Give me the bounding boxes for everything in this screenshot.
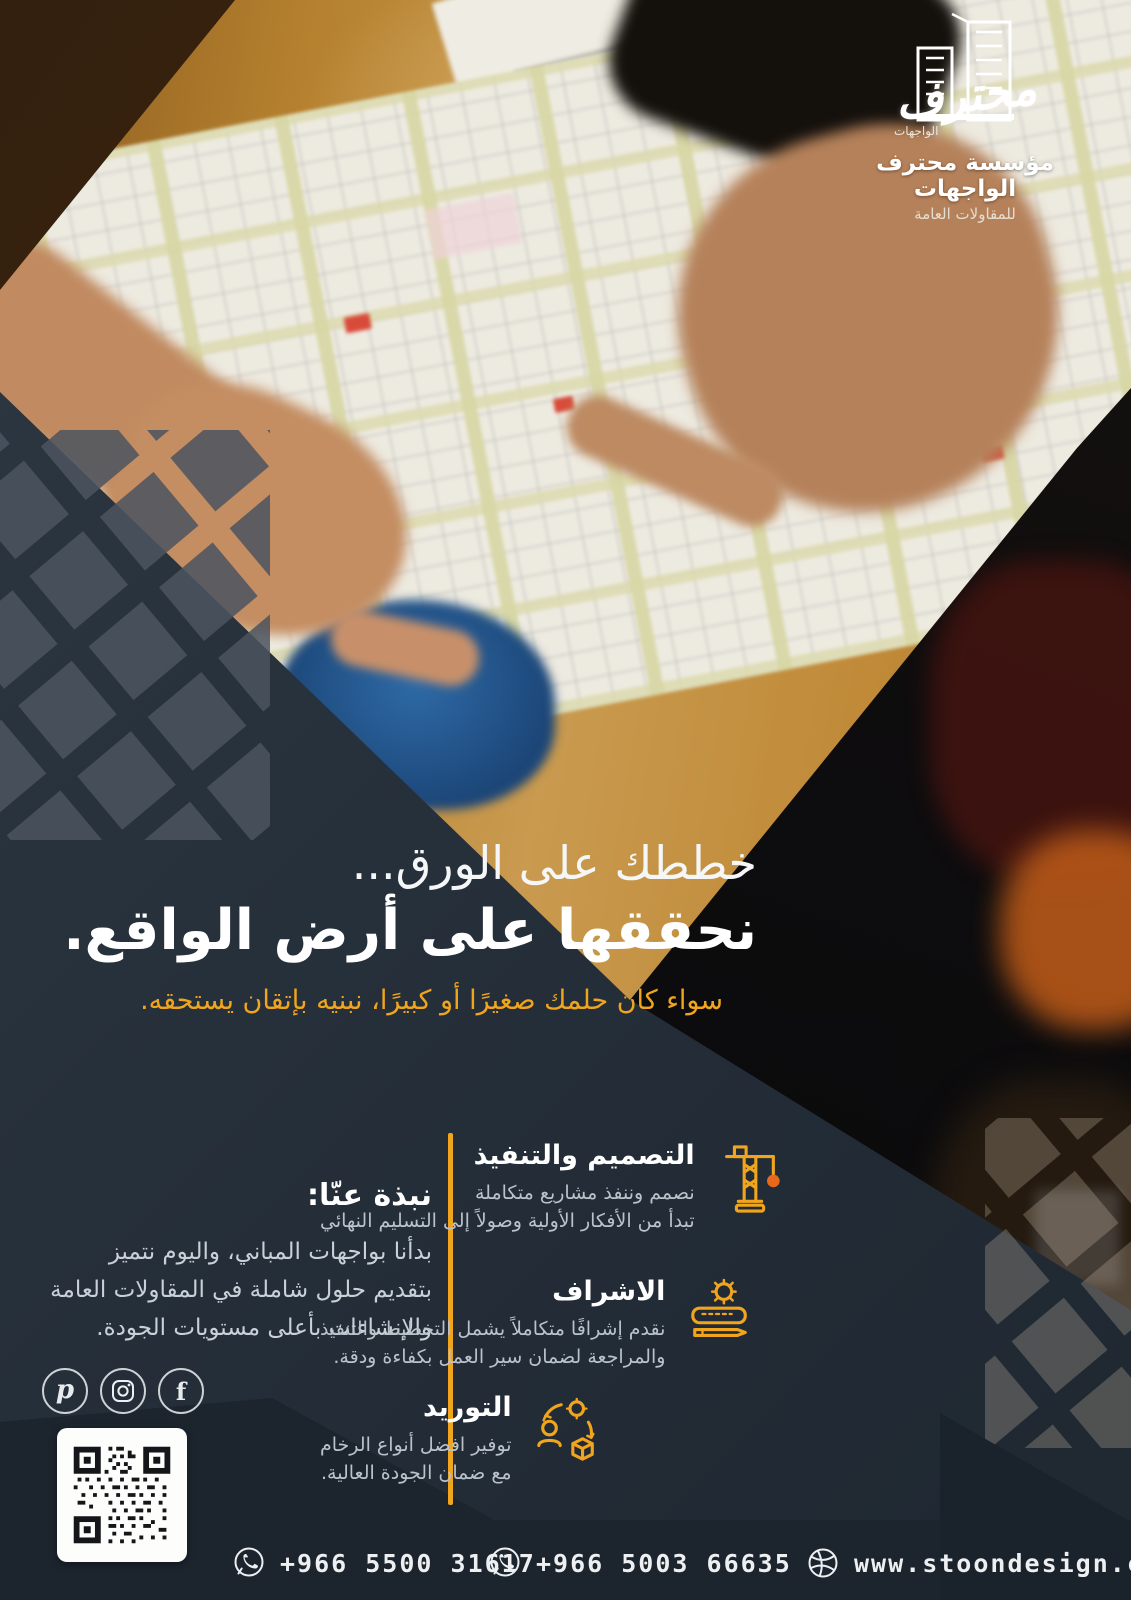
globe-icon xyxy=(804,1544,842,1582)
company-tagline: للمقاولات العامة xyxy=(850,205,1080,223)
website-link[interactable]: www.stoondesign.com xyxy=(804,1540,1131,1586)
supervision-gear-ruler-icon xyxy=(685,1276,755,1352)
headline-line2: نحققها على أرض الواقع. xyxy=(0,898,757,963)
facebook-glyph: f xyxy=(176,1377,186,1406)
logo-buildings-icon: محترف الواجهات xyxy=(880,6,1050,146)
service-desc-line: نصمم وننفذ مشاريع متكاملة xyxy=(320,1179,695,1207)
hero-subtitle: سواء كان حلمك صغيرًا أو كبيرًا، نبنيه بإ… xyxy=(0,985,757,1016)
service-supervision: الاشراف نقدم إشرافًا متكاملاً يشمل التخط… xyxy=(320,1276,940,1371)
supply-cycle-icon xyxy=(532,1392,602,1468)
service-desc-line: نقدم إشرافًا متكاملاً يشمل التخطيط والتن… xyxy=(320,1315,665,1343)
diamond-lattice-right xyxy=(985,1118,1131,1448)
instagram-icon[interactable] xyxy=(100,1368,146,1414)
whatsapp-icon xyxy=(230,1544,268,1582)
poster: محترف الواجهات مؤسسة محترف الواجهات للمق… xyxy=(0,0,1131,1600)
service-desc-line: مع ضمان الجودة العالية. xyxy=(320,1459,512,1487)
pinterest-icon[interactable]: p xyxy=(42,1368,88,1414)
service-design-execution: التصميم والتنفيذ نصمم وننفذ مشاريع متكام… xyxy=(320,1140,940,1235)
service-title: التصميم والتنفيذ xyxy=(320,1140,695,1171)
service-desc-line: تبدأ من الأفكار الأولية وصولاً إلى التسل… xyxy=(320,1207,695,1235)
social-icons-row: p f xyxy=(42,1368,204,1414)
about-text-line: بدأنا بواجهات المباني، واليوم نتميز xyxy=(40,1233,432,1271)
qr-code xyxy=(57,1428,187,1562)
company-logo: محترف الواجهات مؤسسة محترف الواجهات للمق… xyxy=(850,6,1080,223)
phone-number: +966 5003 66635 xyxy=(536,1549,792,1578)
service-title: التوريد xyxy=(320,1392,512,1423)
whatsapp-icon xyxy=(486,1544,524,1582)
hero-block: خططك على الورق... نحققها على أرض الواقع.… xyxy=(0,836,757,1016)
service-desc-line: توفير افضل أنواع الرخام xyxy=(320,1431,512,1459)
phone-contact-2[interactable]: +966 5003 66635 xyxy=(486,1540,792,1586)
facebook-icon[interactable]: f xyxy=(158,1368,204,1414)
logo-calligraphy-sub: الواجهات xyxy=(894,124,938,138)
website-url: www.stoondesign.com xyxy=(854,1549,1131,1578)
service-desc-line: والمراجعة لضمان سير العمل بكفاءة ودقة. xyxy=(320,1343,665,1371)
headline-line1: خططك على الورق... xyxy=(0,836,757,890)
company-name: مؤسسة محترف الواجهات xyxy=(850,150,1080,202)
service-title: الاشراف xyxy=(320,1276,665,1307)
crane-icon xyxy=(715,1140,785,1216)
diamond-lattice-left xyxy=(0,430,270,840)
service-supply: التوريد توفير افضل أنواع الرخام مع ضمان … xyxy=(320,1392,940,1487)
pinterest-glyph: p xyxy=(56,1375,74,1405)
